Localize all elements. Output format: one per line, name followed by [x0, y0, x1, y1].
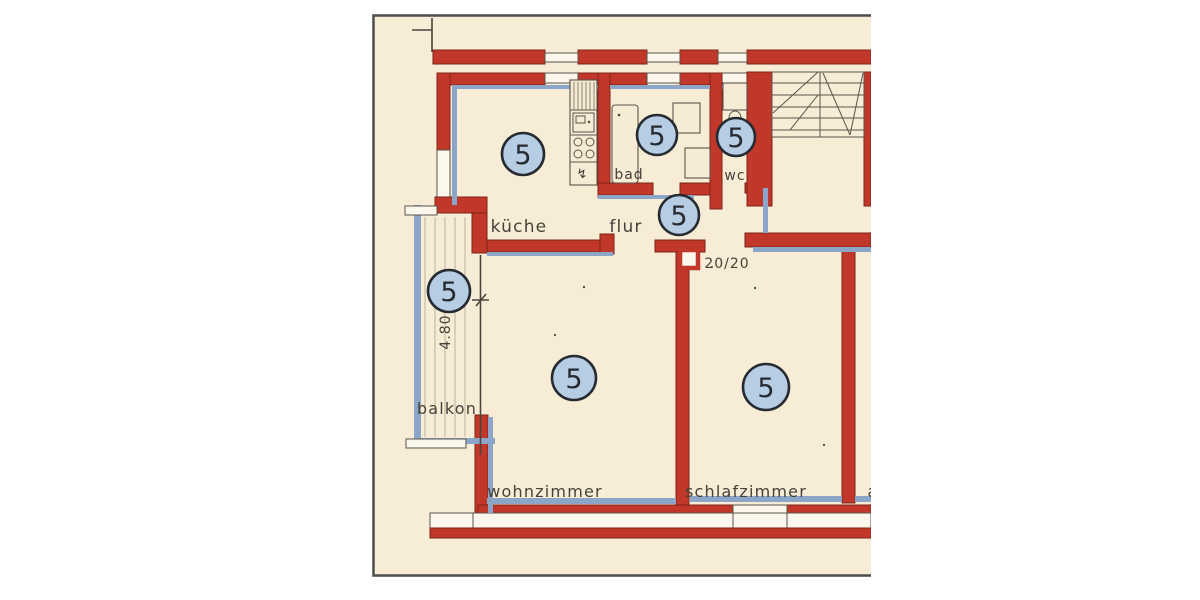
- wall-corner-kueche: [435, 197, 487, 213]
- door-column: [680, 250, 698, 268]
- bathtub-drain: [618, 114, 621, 117]
- south-parapet: [430, 513, 871, 528]
- wall-schlafzimmer-top: [745, 233, 871, 247]
- wall-wohnzimmer-left: [475, 415, 488, 513]
- toilet-cistern: [723, 83, 747, 110]
- label-wohnzimmer: wohnzimmer: [487, 482, 603, 501]
- svg-text:5: 5: [565, 364, 582, 395]
- floor-plan-drawing: ↯ 5 5 5: [372, 14, 871, 577]
- label-bad: bad: [614, 167, 643, 183]
- south-wall: [430, 505, 871, 538]
- south-wall-inner-right: [787, 505, 871, 513]
- entrance-door-line: [763, 188, 768, 233]
- svg-text:5: 5: [727, 123, 744, 154]
- label-balcony-dimension: 4.80: [438, 314, 454, 349]
- south-wall-inner-left: [478, 505, 733, 513]
- wall-stairwell-right: [864, 72, 871, 206]
- wall-kueche-left: [437, 73, 450, 150]
- svg-text:5: 5: [670, 201, 687, 232]
- room-marker-wohnzimmer: 5: [552, 356, 596, 400]
- bad-window: [647, 73, 680, 83]
- room-marker-balkon: 5: [428, 270, 470, 312]
- wall-wohnzimmer-schlafzimmer: [676, 252, 689, 513]
- wall-end-cap: [600, 234, 614, 254]
- washing-machine: [685, 148, 710, 178]
- kitchen-counter: ↯: [570, 80, 597, 185]
- label-door-dimension: 20/20: [704, 256, 749, 272]
- wall-kueche-bottom: [487, 240, 613, 252]
- gas-symbol: ↯: [577, 167, 588, 182]
- room-marker-flur: 5: [659, 195, 699, 235]
- label-balkon: balkon: [417, 399, 477, 418]
- balcony-rail-top: [405, 206, 437, 215]
- wall-bad-bottom-left: [598, 183, 653, 195]
- balcony-rail-bottom: [406, 439, 466, 448]
- label-kueche: küche: [491, 217, 548, 237]
- room-marker-kueche: 5: [502, 133, 544, 175]
- label-partial-room: a: [867, 482, 871, 501]
- schlafzimmer-south-window: [733, 505, 787, 513]
- floor-plan: ↯ 5 5 5: [372, 14, 871, 577]
- label-schlafzimmer: schlafzimmer: [685, 482, 807, 501]
- label-flur: flur: [609, 217, 642, 237]
- balcony-door-window: [437, 150, 450, 203]
- svg-text:5: 5: [440, 277, 457, 308]
- wall-kueche-bad: [598, 73, 610, 197]
- svg-text:5: 5: [648, 121, 665, 152]
- wall-corner-kueche-down: [472, 213, 487, 253]
- svg-text:5: 5: [757, 373, 774, 404]
- south-wall-outer: [430, 528, 871, 538]
- svg-text:5: 5: [514, 140, 531, 171]
- label-wc: wc: [724, 168, 745, 184]
- room-marker-bad: 5: [637, 115, 677, 155]
- wall-schlafzimmer-right: [842, 247, 855, 503]
- room-marker-schlafzimmer: 5: [743, 364, 789, 410]
- room-marker-wc: 5: [717, 118, 755, 156]
